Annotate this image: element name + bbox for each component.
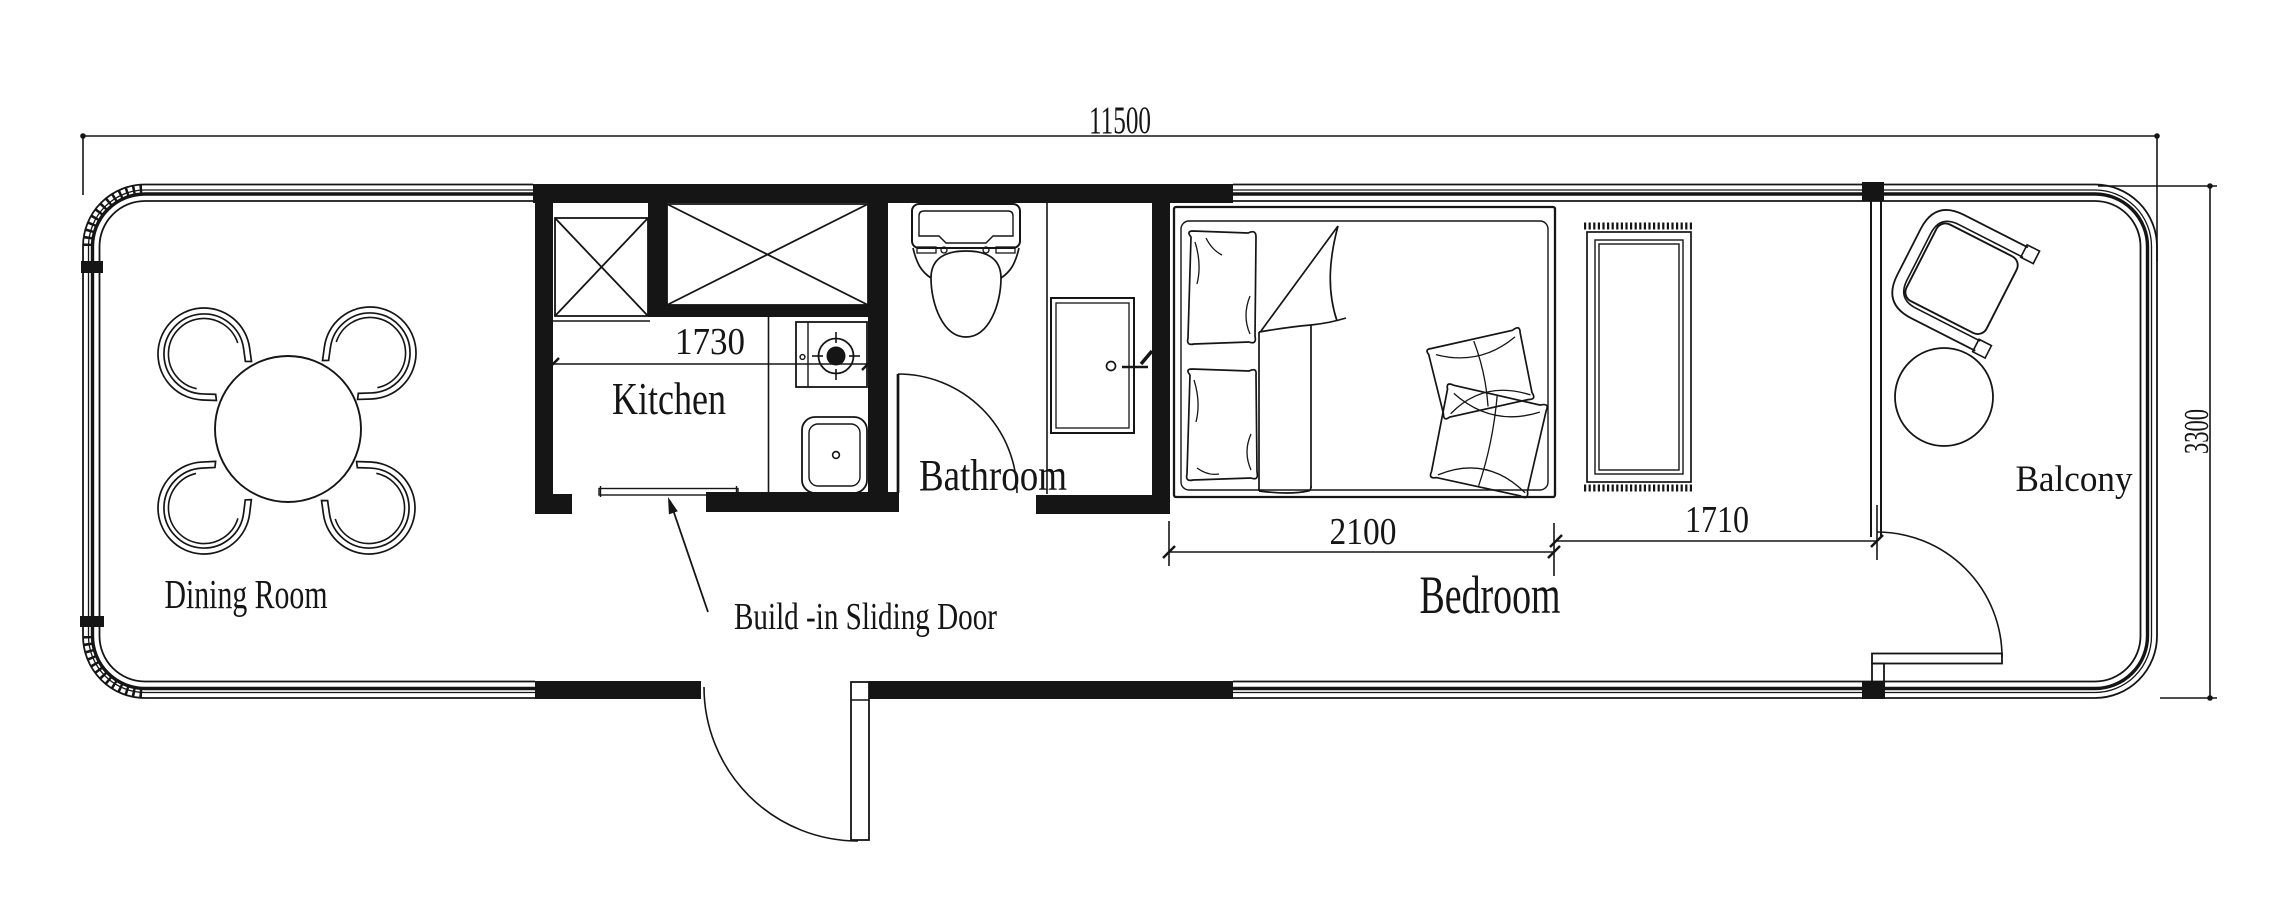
svg-text:1710: 1710 (1685, 499, 1749, 541)
svg-text:3300: 3300 (2177, 409, 2216, 454)
svg-text:Build -in Sliding Door: Build -in Sliding Door (734, 596, 997, 638)
svg-text:11500: 11500 (1089, 99, 1151, 142)
svg-text:Bedroom: Bedroom (1420, 565, 1561, 625)
svg-text:Kitchen: Kitchen (612, 373, 726, 424)
svg-text:Bathroom: Bathroom (919, 451, 1067, 500)
svg-text:2100: 2100 (1330, 511, 1397, 553)
svg-text:1730: 1730 (675, 321, 745, 363)
svg-text:Dining Room: Dining Room (165, 571, 328, 617)
svg-text:Balcony: Balcony (2016, 459, 2133, 500)
